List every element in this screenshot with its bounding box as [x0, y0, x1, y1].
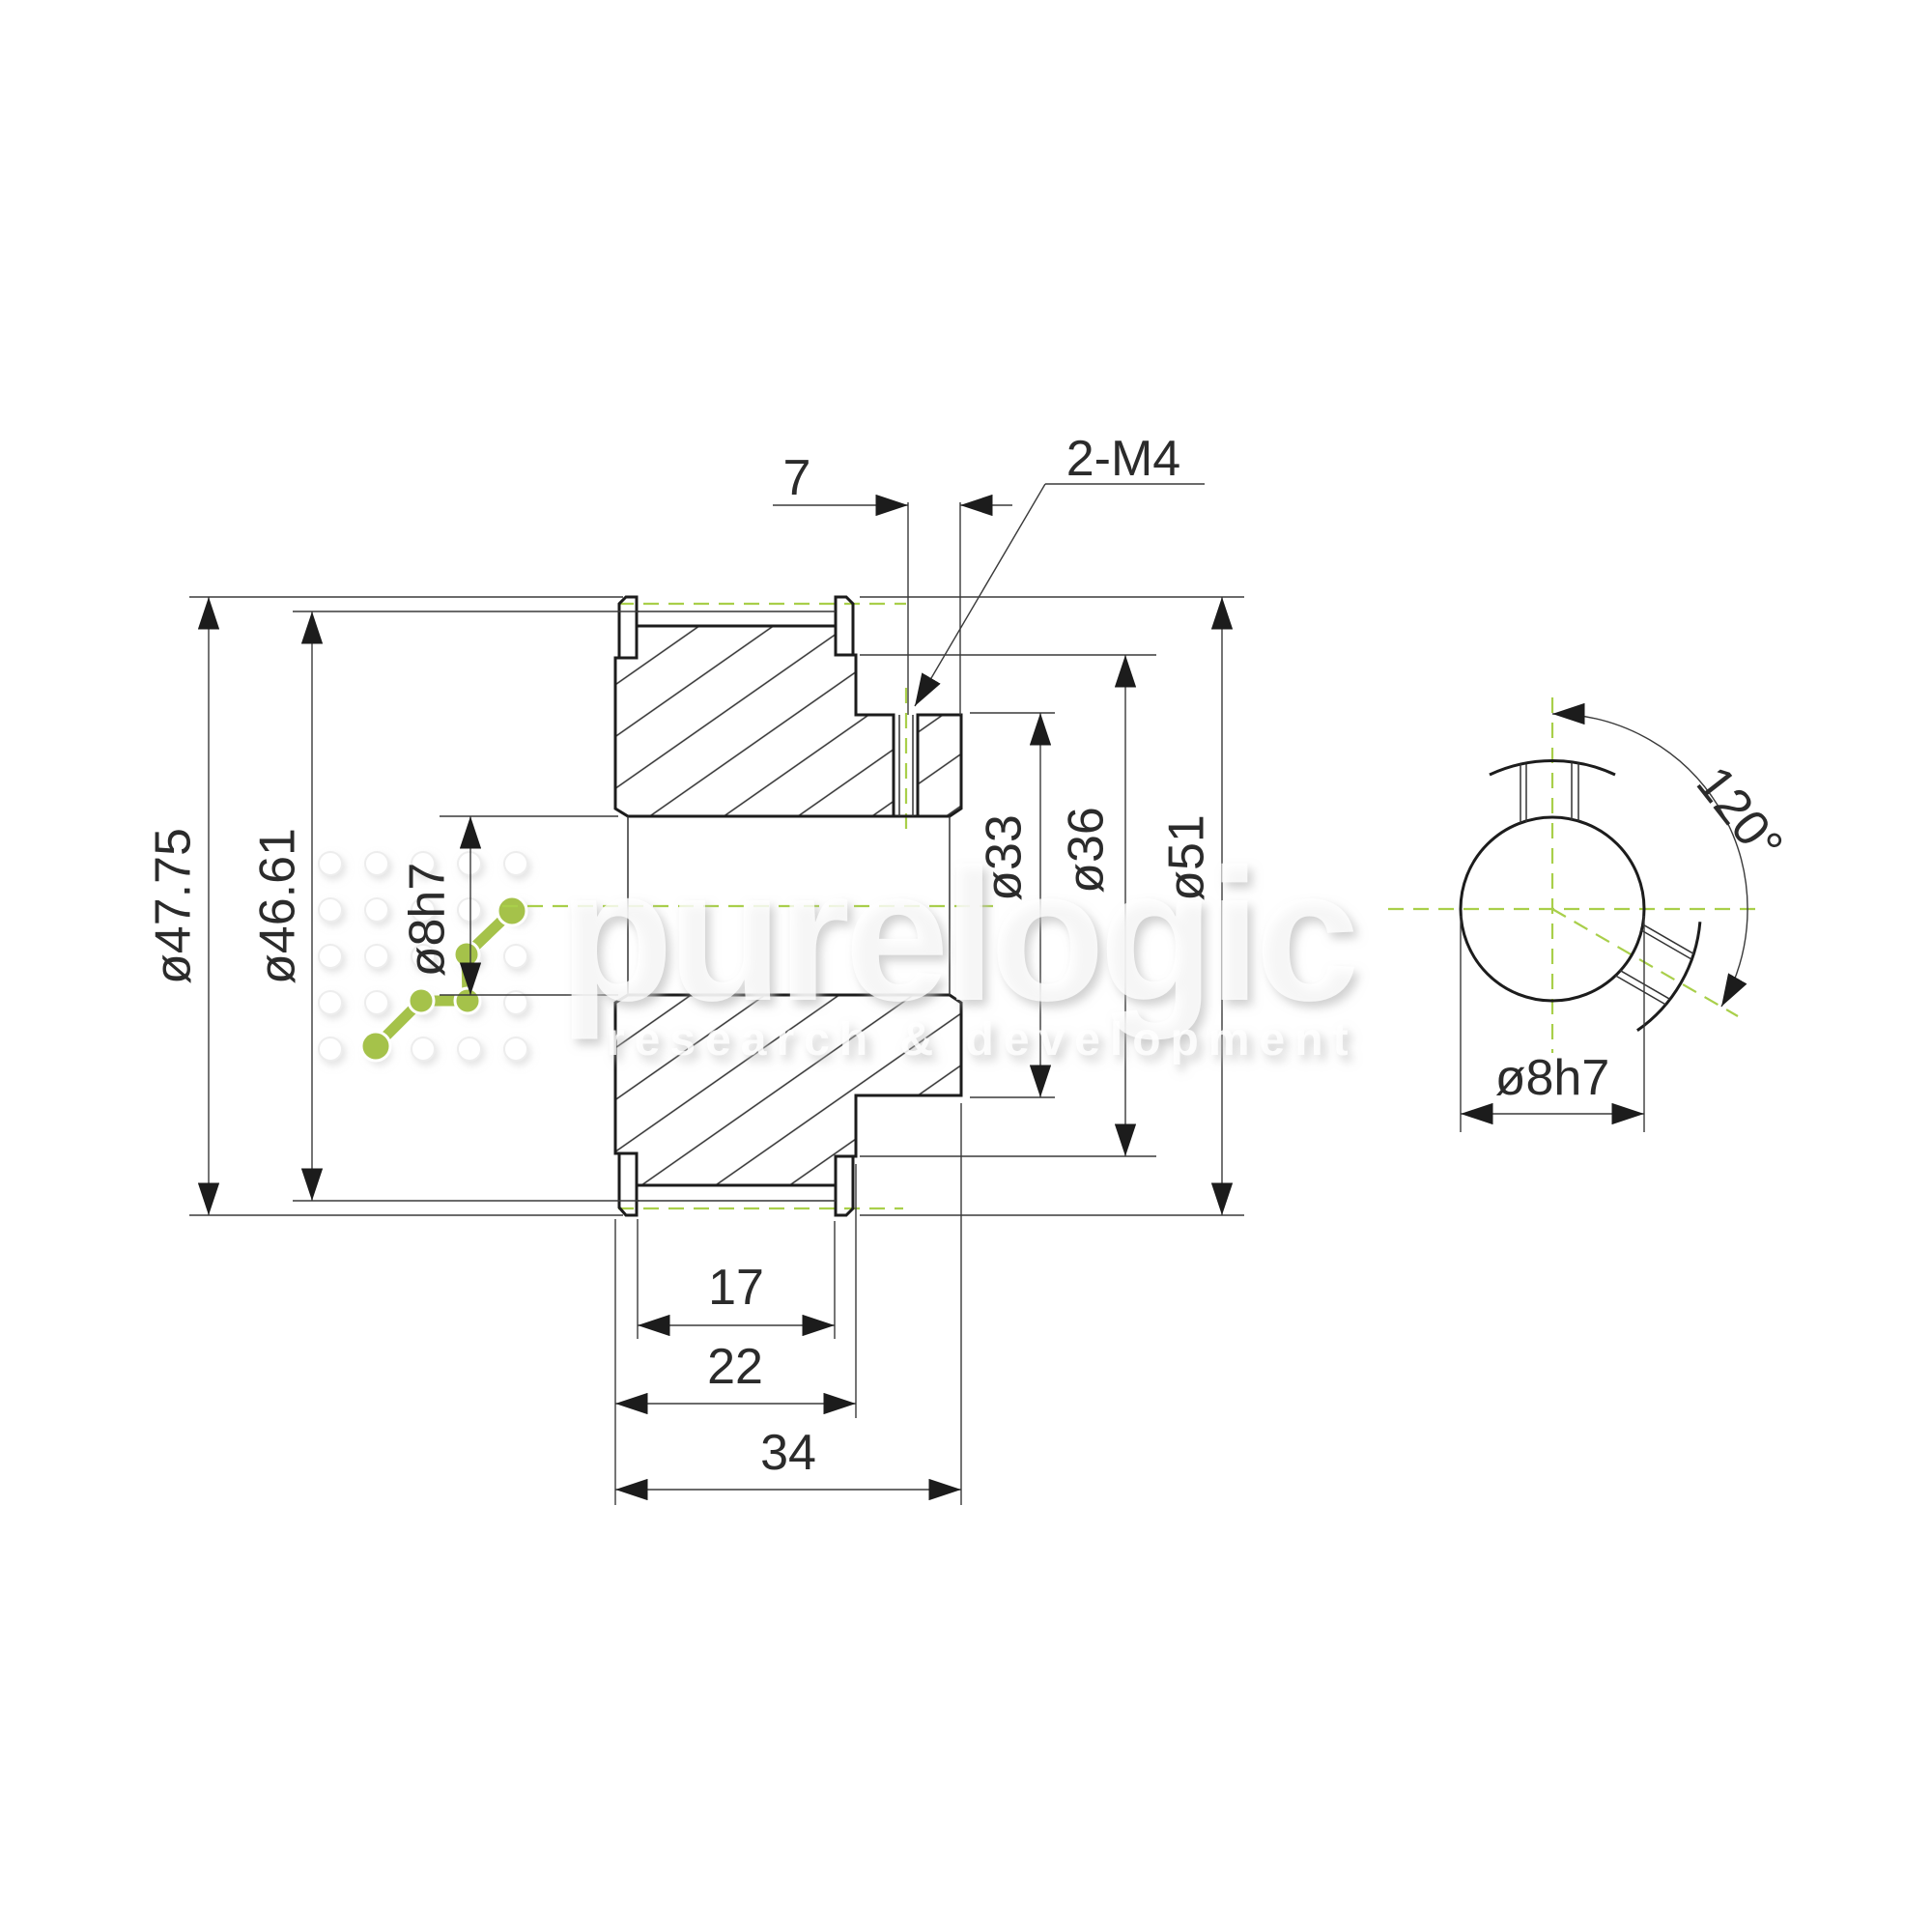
logo-node [361, 1032, 390, 1061]
dim-setscrew-angle-label: 120° [1686, 756, 1794, 872]
flange-bottom-left [619, 1153, 637, 1215]
flange-top-left [619, 597, 637, 658]
drawing-canvas: ø47.75 ø46.61 ø8h7 ø33 ø36 [0, 0, 1932, 1932]
end-view: 120° ø8h7 [1388, 697, 1794, 1132]
watermark-tagline: research & development [607, 1014, 1358, 1065]
dim-bore-diameter-label: ø8h7 [400, 863, 456, 978]
hatch-upper-right [918, 715, 961, 816]
logo-node [454, 942, 479, 967]
dim-setscrew-offset-label: 7 [783, 450, 811, 506]
setscrew-hole-top [1490, 761, 1615, 823]
logo-node [497, 896, 526, 925]
pulley-technical-drawing: ø47.75 ø46.61 ø8h7 ø33 ø36 [0, 0, 1932, 1932]
dim-tooth-tip-diameter-label: ø46.61 [250, 828, 306, 984]
watermark: purelogic research & development [558, 830, 1358, 1065]
dim-setscrew-angle: 120° [1552, 714, 1794, 1007]
dim-shoulder-width-label: 22 [707, 1339, 763, 1395]
callout-setscrew-spec: 2-M4 [915, 431, 1205, 706]
dim-flange-diameter-label: ø47.75 [146, 828, 202, 984]
dim-belt-width-label: 17 [708, 1260, 764, 1316]
flange-top-right [836, 597, 853, 655]
logo-node [409, 988, 434, 1013]
dim-shoulder-width: 22 [615, 1164, 856, 1505]
setscrew-hole-120 [1596, 897, 1713, 1037]
dim-belt-width: 17 [638, 1219, 835, 1339]
watermark-brand: purelogic [558, 830, 1354, 1040]
dim-overall-width-label: 34 [760, 1425, 816, 1481]
dim-bore-diameter-endview-label: ø8h7 [1495, 1050, 1610, 1106]
flange-bottom-right [836, 1156, 853, 1215]
callout-setscrew-spec-label: 2-M4 [1066, 431, 1180, 487]
logo-node [455, 988, 480, 1013]
